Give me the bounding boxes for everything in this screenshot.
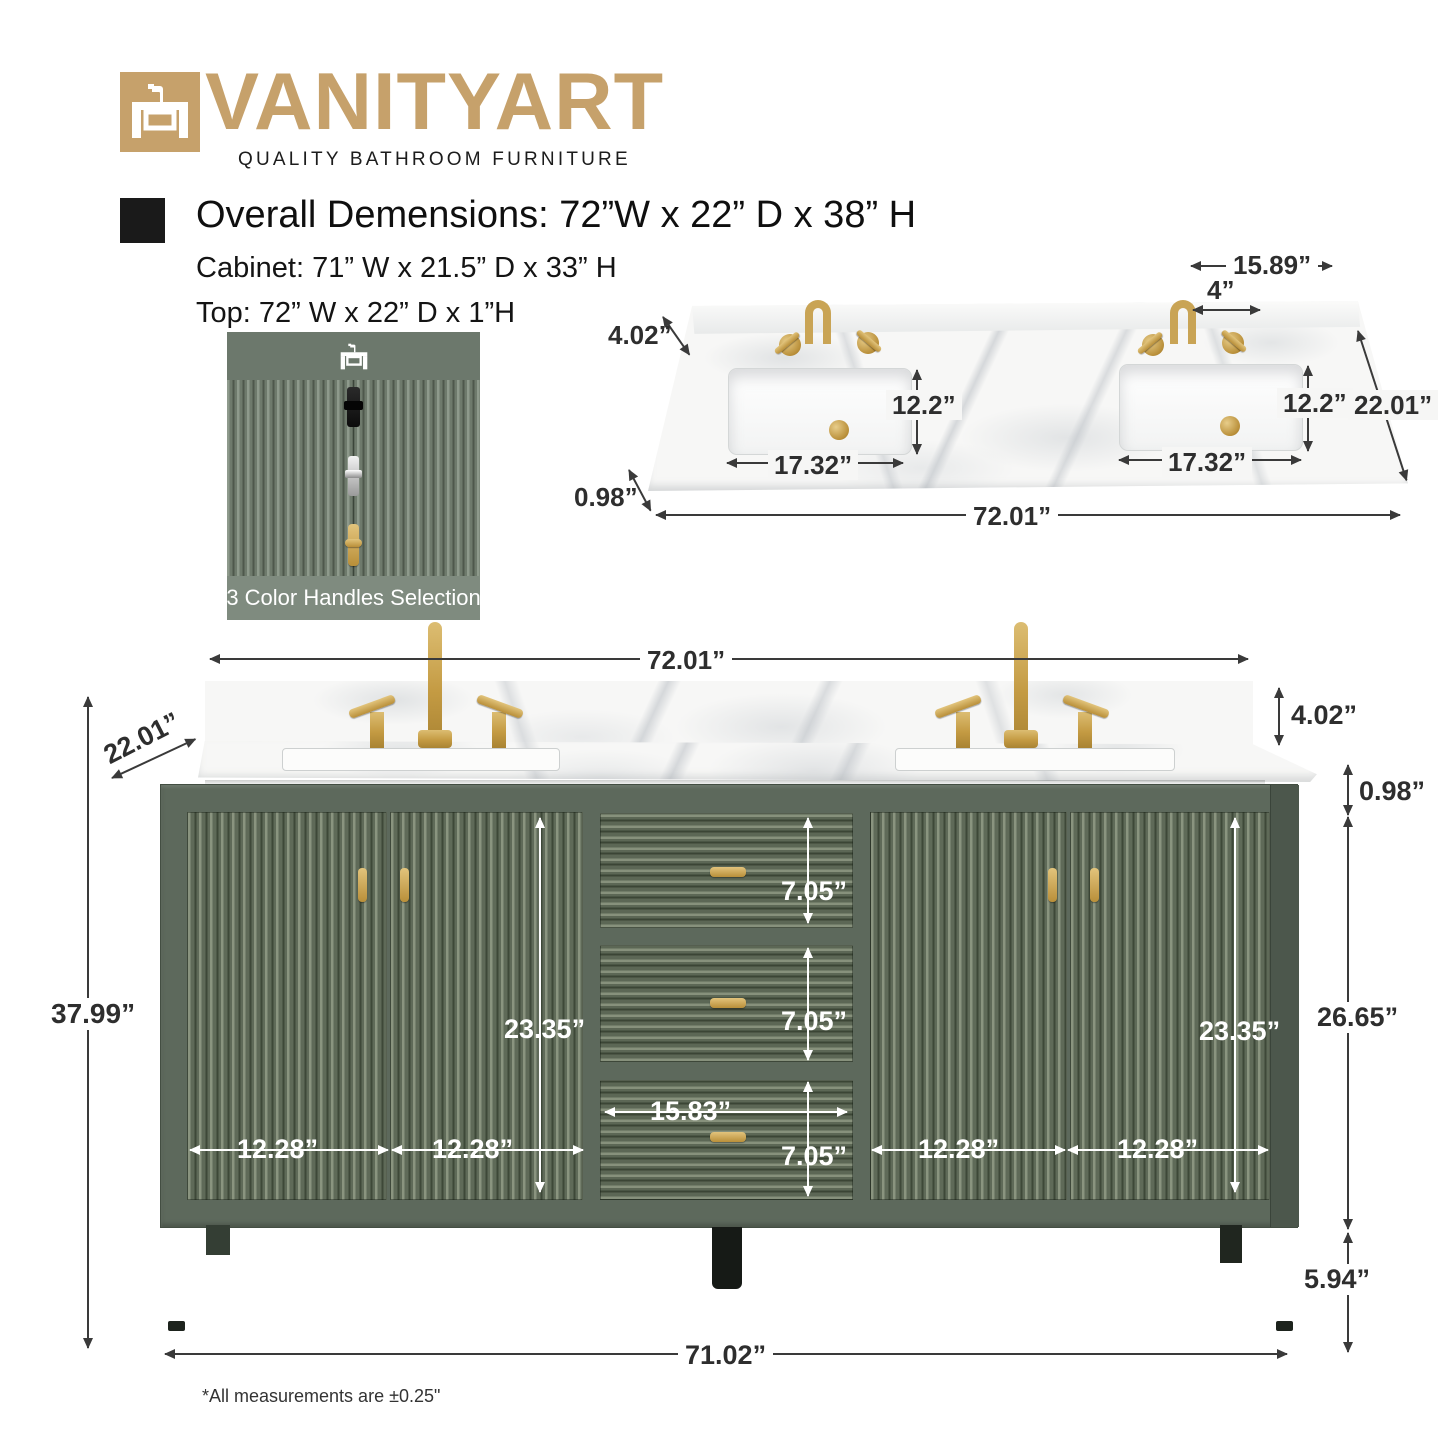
dim-label-body-height: 26.65” <box>1310 1002 1405 1033</box>
front-faucet-right <box>938 618 1106 748</box>
dim-label-sink-width-left: 17.32” <box>768 450 858 480</box>
dim-label-thickness-tv: 0.98” <box>574 484 638 510</box>
dim-label-sink-width-right: 17.32” <box>1162 447 1252 477</box>
leg-foot-right <box>1276 1321 1293 1331</box>
dim-label-sink-depth-right: 12.2” <box>1277 388 1353 418</box>
dim-label-overall-height: 37.99” <box>44 998 142 1030</box>
dim-label-sink-depth-left: 12.2” <box>886 390 962 420</box>
dim-arrow-thickness-fv <box>1347 765 1349 815</box>
dim-label-depth-fv: 22.01” <box>100 708 184 769</box>
back-leg-left <box>206 1225 230 1255</box>
dim-label-width-tv: 72.01” <box>966 501 1058 531</box>
dim-label-hole-spacing: 4” <box>1207 277 1234 303</box>
dim-arrow-door-height-right <box>1234 818 1236 1192</box>
dim-label-base-width: 71.02” <box>678 1340 773 1371</box>
front-leg-left <box>158 1225 194 1329</box>
dim-arrow-drawer2-height <box>807 948 809 1060</box>
dim-label-backsplash-tv: 4.02” <box>608 322 672 348</box>
door-handle <box>400 868 409 902</box>
dim-label-thickness-fv: 0.98” <box>1359 778 1425 805</box>
drawer-handle <box>710 867 746 877</box>
dim-label-door-width-1: 12.28” <box>237 1136 318 1163</box>
dim-arrow-hole-spacing <box>1193 309 1260 311</box>
drawer-handle <box>710 1132 746 1142</box>
dim-arrow-drawer1-height <box>807 818 809 923</box>
sink-recess-right <box>895 748 1175 771</box>
dim-label-faucet-spread: 15.89” <box>1226 250 1318 280</box>
front-leg-right <box>1262 1225 1298 1329</box>
front-faucet-left <box>352 618 520 748</box>
door-handle <box>358 868 367 902</box>
dim-label-door-height-right: 23.35” <box>1199 1018 1280 1045</box>
center-support-leg <box>712 1227 742 1289</box>
dim-label-drawer1-height: 7.05” <box>781 878 847 905</box>
door-handle <box>1048 868 1057 902</box>
drawer-handle <box>710 998 746 1008</box>
measurement-footnote: *All measurements are ±0.25" <box>202 1386 440 1407</box>
vanity-front-view: 72.01” 22.01” 4.02” 0.98” 37.99” 26.65” … <box>0 0 1445 1445</box>
faucet-post <box>370 712 384 748</box>
dim-label-width-fv: 72.01” <box>640 645 732 675</box>
faucet-base <box>418 730 452 748</box>
dim-label-drawer3-height: 7.05” <box>781 1143 847 1170</box>
faucet-base <box>1004 730 1038 748</box>
leg-foot-left <box>168 1321 185 1331</box>
cabinet-side-panel <box>1270 785 1299 1227</box>
dim-label-leg-height: 5.94” <box>1297 1264 1377 1295</box>
faucet-post <box>1078 712 1092 748</box>
dim-label-depth-tv: 22.01” <box>1348 390 1438 420</box>
dim-label-door-width-3: 12.28” <box>918 1136 999 1163</box>
back-leg-right <box>1220 1225 1242 1263</box>
dimension-sheet: VANITYART QUALITY BATHROOM FURNITURE Ove… <box>0 0 1445 1445</box>
sink-recess-left <box>282 748 560 771</box>
faucet-post <box>492 712 506 748</box>
dim-label-door-height-left: 23.35” <box>504 1016 585 1043</box>
dim-arrow-drawer3-height <box>807 1082 809 1196</box>
dim-arrow-door-height-left <box>539 818 541 1192</box>
dim-label-drawer2-height: 7.05” <box>781 1008 847 1035</box>
dim-label-door-width-4: 12.28” <box>1117 1136 1198 1163</box>
door-handle <box>1090 868 1099 902</box>
faucet-post <box>956 712 970 748</box>
dim-label-door-width-2: 12.28” <box>432 1136 513 1163</box>
dim-label-backsplash-fv: 4.02” <box>1291 702 1357 729</box>
dim-arrow-backsplash-fv <box>1278 688 1280 745</box>
dim-label-drawer-width: 15.83” <box>650 1098 731 1125</box>
